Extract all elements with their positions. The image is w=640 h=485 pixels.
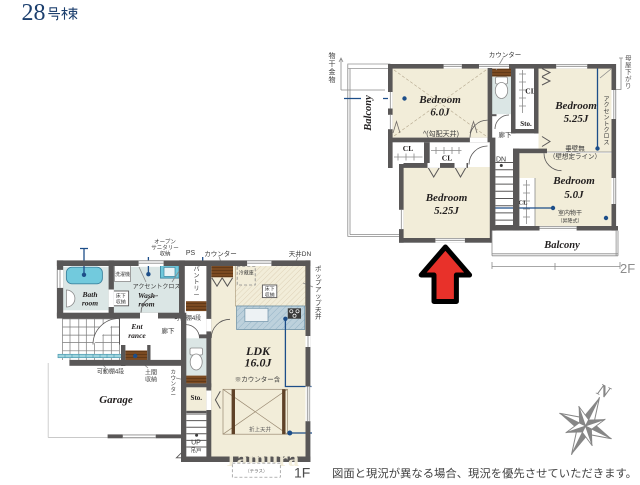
svg-text:カウンター: カウンター <box>204 249 237 258</box>
svg-text:廊下: 廊下 <box>162 326 176 335</box>
svg-text:オープン: オープン <box>154 239 176 246</box>
svg-text:洗濯機: 洗濯機 <box>115 271 130 278</box>
svg-text:天井DN: 天井DN <box>289 249 312 258</box>
svg-text:冷蔵庫: 冷蔵庫 <box>239 270 254 277</box>
svg-text:5.25J: 5.25J <box>434 205 459 217</box>
svg-text:ポップアップ天井: ポップアップ天井 <box>315 265 322 321</box>
svg-text:Bedroom: Bedroom <box>554 100 597 112</box>
svg-text:収納: 収納 <box>159 250 171 258</box>
svg-text:^(勾配天井): ^(勾配天井) <box>423 129 459 138</box>
svg-text:5.0J: 5.0J <box>564 189 584 201</box>
svg-text:収納: 収納 <box>265 292 275 299</box>
svg-text:可動棚4段: 可動棚4段 <box>97 368 124 376</box>
svg-text:垂壁無: 垂壁無 <box>565 144 585 153</box>
svg-text:図面と現況が異なる場合、現況を優先させていただきます。: 図面と現況が異なる場合、現況を優先させていただきます。 <box>332 466 637 480</box>
svg-text:吊戸: 吊戸 <box>190 448 202 455</box>
svg-text:CL: CL <box>403 144 413 153</box>
svg-text:5.25J: 5.25J <box>564 113 589 125</box>
svg-text:room: room <box>138 300 154 309</box>
svg-text:rance: rance <box>128 331 146 340</box>
svg-text:収納: 収納 <box>145 376 157 384</box>
svg-text:母屋下がり: 母屋下がり <box>625 54 632 90</box>
svg-text:1F: 1F <box>294 465 310 481</box>
svg-text:※カウンター含: ※カウンター含 <box>235 375 281 384</box>
svg-text:Balcony: Balcony <box>363 95 374 132</box>
svg-text:床下: 床下 <box>265 286 275 293</box>
svg-text:パントリー: パントリー <box>194 266 200 299</box>
svg-text:Balcony: Balcony <box>543 240 580 251</box>
svg-text:廊下: 廊下 <box>499 130 513 139</box>
svg-text:Bedroom: Bedroom <box>425 192 468 204</box>
svg-text:折上天井: 折上天井 <box>249 426 272 434</box>
svg-text:Bedroom: Bedroom <box>418 94 461 106</box>
svg-text:Ent: Ent <box>130 322 143 331</box>
svg-text:（壁想定ライン）: （壁想定ライン） <box>549 152 601 161</box>
svg-text:UP: UP <box>191 440 201 447</box>
svg-text:28: 28 <box>22 0 46 26</box>
svg-text:アクセントクロス: アクセントクロス <box>133 284 181 291</box>
svg-text:カウンター: カウンター <box>489 50 522 59</box>
svg-text:Garage: Garage <box>99 394 133 406</box>
svg-text:Bedroom: Bedroom <box>552 175 595 187</box>
svg-text:PS: PS <box>186 250 196 257</box>
svg-text:Sto.: Sto. <box>520 120 532 128</box>
svg-text:土間: 土間 <box>145 369 157 377</box>
svg-text:CL: CL <box>442 154 452 163</box>
svg-text:アクセントクロス: アクセントクロス <box>604 96 610 146</box>
svg-text:カウンター: カウンター <box>171 369 177 399</box>
svg-text:収納: 収納 <box>116 299 126 306</box>
svg-text:6.0J: 6.0J <box>430 107 450 119</box>
svg-text:室内物干: 室内物干 <box>558 209 582 217</box>
svg-text:（昇降式）: （昇降式） <box>557 218 582 225</box>
svg-text:床下: 床下 <box>116 293 126 300</box>
svg-text:room: room <box>82 299 98 308</box>
svg-text:物干金物: 物干金物 <box>329 51 336 84</box>
svg-text:Sto.: Sto. <box>191 394 203 402</box>
svg-text:2F: 2F <box>620 261 635 276</box>
svg-text:サニタリー: サニタリー <box>151 244 179 252</box>
svg-text:CL: CL <box>518 200 528 207</box>
svg-text:16.0J: 16.0J <box>245 356 273 370</box>
